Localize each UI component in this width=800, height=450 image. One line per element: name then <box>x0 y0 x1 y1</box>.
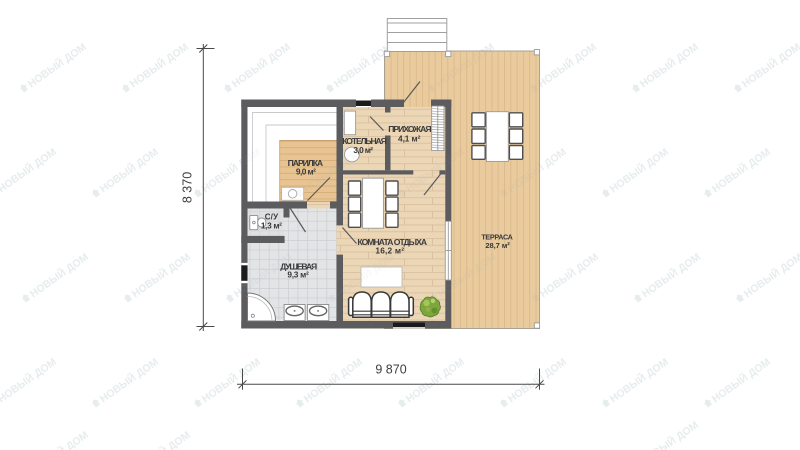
svg-text:3,0 м²: 3,0 м² <box>353 145 373 155</box>
svg-text:1,3 м²: 1,3 м² <box>261 220 282 230</box>
svg-text:ПРИХОЖАЯ: ПРИХОЖАЯ <box>388 124 431 134</box>
svg-text:4,1 м²: 4,1 м² <box>398 133 421 143</box>
svg-text:28,7 м²: 28,7 м² <box>485 241 510 250</box>
svg-text:9 870: 9 870 <box>375 362 406 376</box>
svg-text:ТЕРРАСА: ТЕРРАСА <box>481 232 512 241</box>
svg-text:9,0 м²: 9,0 м² <box>296 167 316 177</box>
svg-text:8 370: 8 370 <box>181 172 195 203</box>
svg-text:16,2 м²: 16,2 м² <box>375 246 404 256</box>
svg-text:9,3 м²: 9,3 м² <box>287 270 309 280</box>
